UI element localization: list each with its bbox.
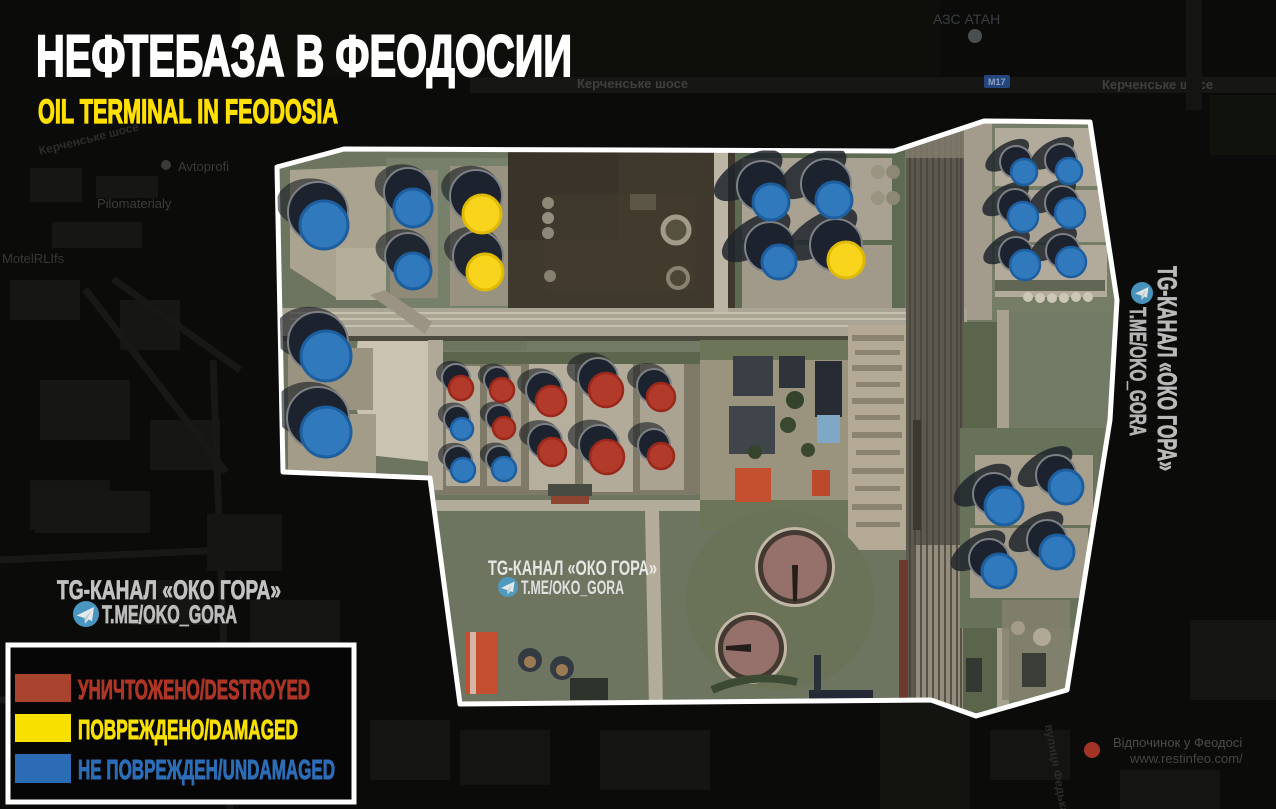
svg-text:Відпочинок у Феодосі: Відпочинок у Феодосі [1113, 735, 1242, 750]
svg-text:MotelRLIfs: MotelRLIfs [2, 251, 65, 266]
svg-text:OIL TERMINAL IN FEODOSIA: OIL TERMINAL IN FEODOSIA [38, 93, 338, 131]
svg-text:www.restinfeo.com/: www.restinfeo.com/ [1129, 751, 1243, 766]
svg-text:Керченське шосе: Керченське шосе [577, 76, 688, 91]
svg-text:Avtoprofi: Avtoprofi [178, 159, 229, 174]
svg-text:T.ME/OKO_GORA: T.ME/OKO_GORA [521, 578, 624, 599]
svg-text:НЕФТЕБАЗА В ФЕОДОСИИ: НЕФТЕБАЗА В ФЕОДОСИИ [36, 24, 572, 89]
svg-text:M17: M17 [988, 77, 1006, 87]
svg-text:Pilomaterialy: Pilomaterialy [97, 196, 172, 211]
svg-text:УНИЧТОЖЕНО/DESTROYED: УНИЧТОЖЕНО/DESTROYED [78, 674, 310, 705]
svg-text:НЕ ПОВРЕЖДЕН/UNDAMAGED: НЕ ПОВРЕЖДЕН/UNDAMAGED [78, 754, 335, 785]
svg-text:TG-КАНАЛ «ОКО ГОРА»: TG-КАНАЛ «ОКО ГОРА» [1152, 266, 1182, 471]
svg-text:T.ME/OKO_GORA: T.ME/OKO_GORA [1125, 307, 1151, 436]
svg-text:T.ME/OKO_GORA: T.ME/OKO_GORA [102, 601, 237, 629]
svg-text:TG-КАНАЛ «ОКО ГОРА»: TG-КАНАЛ «ОКО ГОРА» [488, 557, 657, 580]
svg-text:ПОВРЕЖДЕНО/DAMAGED: ПОВРЕЖДЕНО/DAMAGED [78, 714, 298, 745]
svg-text:АЗС АТАН: АЗС АТАН [933, 11, 1000, 27]
